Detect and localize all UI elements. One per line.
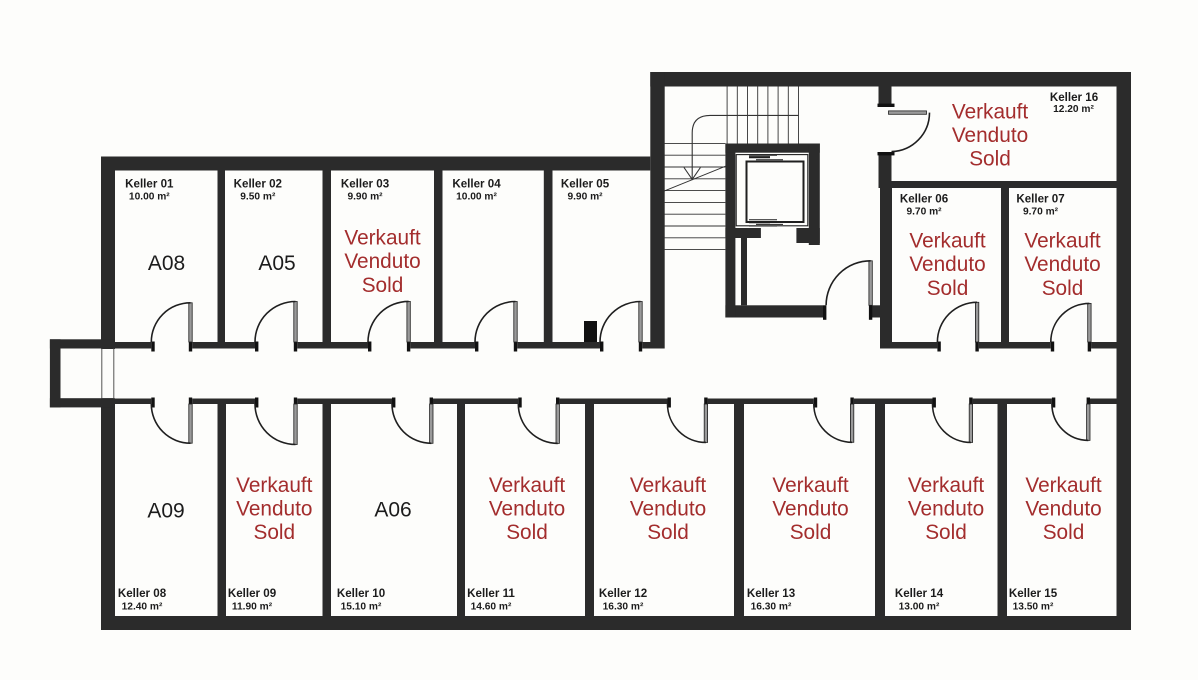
svg-text:Keller 01: Keller 01 bbox=[125, 178, 174, 191]
svg-text:Keller 12: Keller 12 bbox=[599, 587, 647, 600]
svg-text:Venduto: Venduto bbox=[630, 498, 706, 521]
svg-text:Verkauft: Verkauft bbox=[772, 474, 849, 497]
svg-text:13.50 m²: 13.50 m² bbox=[1013, 602, 1054, 613]
svg-text:9.90 m²: 9.90 m² bbox=[347, 192, 383, 203]
svg-text:9.50 m²: 9.50 m² bbox=[240, 192, 276, 203]
svg-text:Sold: Sold bbox=[253, 521, 295, 544]
svg-text:Keller 09: Keller 09 bbox=[228, 587, 277, 600]
svg-text:Keller 04: Keller 04 bbox=[452, 178, 501, 191]
svg-text:11.90 m²: 11.90 m² bbox=[232, 602, 273, 613]
svg-text:Sold: Sold bbox=[506, 521, 548, 544]
svg-text:Keller 15: Keller 15 bbox=[1009, 587, 1058, 600]
svg-text:A09: A09 bbox=[147, 500, 184, 523]
svg-text:14.60 m²: 14.60 m² bbox=[471, 602, 512, 613]
svg-text:Keller 06: Keller 06 bbox=[900, 192, 949, 205]
svg-text:Sold: Sold bbox=[969, 148, 1011, 171]
svg-text:Verkauft: Verkauft bbox=[1024, 230, 1101, 253]
svg-text:A06: A06 bbox=[374, 499, 411, 522]
svg-text:Verkauft: Verkauft bbox=[1025, 474, 1102, 497]
svg-text:Keller 16: Keller 16 bbox=[1050, 91, 1099, 104]
svg-text:Sold: Sold bbox=[1042, 277, 1084, 300]
svg-text:Verkauft: Verkauft bbox=[489, 474, 566, 497]
svg-text:12.20 m²: 12.20 m² bbox=[1053, 104, 1094, 115]
svg-text:Keller 11: Keller 11 bbox=[467, 587, 515, 600]
svg-text:Venduto: Venduto bbox=[236, 498, 312, 521]
svg-text:A05: A05 bbox=[258, 252, 295, 275]
svg-text:Verkauft: Verkauft bbox=[236, 474, 313, 497]
svg-text:Verkauft: Verkauft bbox=[909, 230, 986, 253]
svg-text:Sold: Sold bbox=[927, 277, 969, 300]
svg-text:Verkauft: Verkauft bbox=[344, 226, 421, 249]
svg-text:A08: A08 bbox=[148, 252, 185, 275]
svg-text:Venduto: Venduto bbox=[344, 250, 420, 273]
svg-text:Venduto: Venduto bbox=[489, 498, 565, 521]
svg-text:9.90 m²: 9.90 m² bbox=[567, 192, 603, 203]
svg-text:Venduto: Venduto bbox=[772, 498, 848, 521]
svg-text:Keller 05: Keller 05 bbox=[561, 178, 610, 191]
svg-text:Keller 07: Keller 07 bbox=[1016, 192, 1064, 205]
svg-text:Venduto: Venduto bbox=[952, 124, 1028, 147]
svg-text:Sold: Sold bbox=[362, 274, 404, 297]
svg-text:Keller 13: Keller 13 bbox=[747, 587, 796, 600]
svg-text:12.40 m²: 12.40 m² bbox=[122, 602, 163, 613]
svg-text:Sold: Sold bbox=[1043, 521, 1085, 544]
svg-text:Sold: Sold bbox=[790, 521, 832, 544]
svg-text:13.00 m²: 13.00 m² bbox=[899, 602, 940, 613]
svg-text:16.30 m²: 16.30 m² bbox=[751, 602, 792, 613]
svg-text:Keller 03: Keller 03 bbox=[341, 178, 390, 191]
svg-text:10.00 m²: 10.00 m² bbox=[129, 192, 170, 203]
svg-text:16.30 m²: 16.30 m² bbox=[603, 602, 644, 613]
svg-text:Keller 08: Keller 08 bbox=[118, 587, 167, 600]
svg-text:Venduto: Venduto bbox=[1024, 253, 1100, 276]
svg-text:Venduto: Venduto bbox=[1025, 498, 1101, 521]
svg-text:Sold: Sold bbox=[647, 521, 689, 544]
svg-text:Verkauft: Verkauft bbox=[908, 474, 985, 497]
svg-text:9.70 m²: 9.70 m² bbox=[1023, 207, 1059, 218]
svg-text:Keller 14: Keller 14 bbox=[895, 587, 944, 600]
svg-text:Venduto: Venduto bbox=[909, 253, 985, 276]
svg-text:Venduto: Venduto bbox=[908, 498, 984, 521]
svg-text:9.70 m²: 9.70 m² bbox=[906, 207, 942, 218]
svg-text:Sold: Sold bbox=[925, 521, 967, 544]
svg-text:10.00 m²: 10.00 m² bbox=[456, 192, 497, 203]
svg-text:Keller 10: Keller 10 bbox=[337, 587, 385, 600]
svg-text:Verkauft: Verkauft bbox=[630, 474, 707, 497]
svg-text:Keller 02: Keller 02 bbox=[234, 178, 282, 191]
svg-text:15.10 m²: 15.10 m² bbox=[341, 602, 382, 613]
svg-text:Verkauft: Verkauft bbox=[952, 100, 1029, 123]
